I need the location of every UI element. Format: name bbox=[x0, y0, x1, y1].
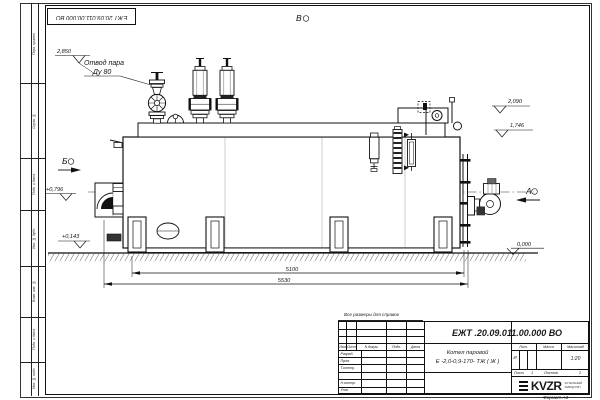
svg-text:2,850: 2,850 bbox=[56, 49, 72, 55]
tb-h4r bbox=[511, 350, 590, 351]
steam-outlet-label-line1: Отвод пара bbox=[84, 59, 124, 67]
format-label: Формат А3 bbox=[543, 395, 568, 400]
tb-v3 bbox=[361, 350, 362, 395]
stamp-label-podp-data-1: Подп. и дата bbox=[32, 162, 36, 206]
lit-value: И bbox=[511, 355, 519, 360]
col-ndokum: N докум. bbox=[356, 345, 387, 349]
view-marker-right: А bbox=[516, 186, 540, 203]
masshtab-header: Масштаб bbox=[561, 345, 590, 349]
view-right-letter: А bbox=[525, 186, 532, 196]
stamp-label-podp-data-2: Подп. и дата bbox=[32, 321, 36, 358]
view-marker-left: Б bbox=[58, 156, 81, 173]
stamp-div-3 bbox=[20, 210, 45, 211]
logo-area: KVZR КОТЕЛЬНЫЙ ЗАВОД РЭП bbox=[511, 376, 590, 395]
logo-sub2: ЗАВОД РЭП bbox=[565, 386, 583, 389]
logo-bar bbox=[519, 381, 528, 383]
stamp-div-6 bbox=[20, 362, 45, 363]
ground bbox=[48, 253, 538, 262]
tb-h9 bbox=[339, 387, 424, 388]
tb-h7 bbox=[339, 372, 511, 373]
stamp-label-perv-primen: Перв. примен. bbox=[32, 8, 36, 80]
logo-text: KVZR bbox=[531, 379, 562, 393]
col-podp: Подп. bbox=[386, 345, 407, 349]
tb-h5 bbox=[339, 357, 424, 358]
elevation-0796: +0,796 bbox=[45, 187, 76, 201]
logo-subtext: КОТЕЛЬНЫЙ ЗАВОД РЭП bbox=[565, 382, 583, 389]
product-name-line2: Е -2,0-0,9-170- ТЖ ( Ж ) bbox=[436, 358, 500, 367]
row-nkontr: Н.контр. bbox=[341, 381, 356, 385]
logo-bar bbox=[519, 389, 528, 391]
stamp-label-inv-dubl: Инв. № дубл. bbox=[32, 214, 36, 262]
col-data: Дата bbox=[406, 345, 425, 349]
scale-value: 1:20 bbox=[561, 356, 590, 362]
stamp-div-5 bbox=[20, 317, 45, 318]
svg-text:2,090: 2,090 bbox=[507, 99, 523, 105]
steam-outlet-label-line2: Ду 80 bbox=[92, 69, 111, 76]
safety-valve-1 bbox=[189, 59, 212, 124]
stamp-div-2 bbox=[20, 158, 45, 159]
tb-v5 bbox=[406, 322, 407, 395]
dome-fitting bbox=[168, 114, 184, 123]
tb-h1 bbox=[339, 329, 424, 330]
safety-valve-2 bbox=[216, 59, 239, 124]
reference-note: Все размеры для справок bbox=[344, 312, 399, 317]
manhole bbox=[157, 223, 179, 239]
elevation-2090: 2,090 bbox=[492, 99, 530, 113]
sheets-value: 2 bbox=[579, 371, 581, 375]
row-razrab: Разраб. bbox=[341, 352, 354, 356]
svg-text:5530: 5530 bbox=[278, 278, 291, 284]
sheet-label: Лист bbox=[514, 371, 524, 375]
steam-outlet-valve bbox=[148, 73, 165, 124]
boiler-bottom-rail bbox=[137, 248, 450, 253]
view-marker-top: В bbox=[296, 13, 309, 23]
product-name-line1: Котел паровой bbox=[447, 349, 489, 358]
burner bbox=[468, 179, 501, 216]
svg-text:0,000: 0,000 bbox=[517, 242, 532, 248]
level-gauge-2 bbox=[393, 127, 402, 174]
svg-text:1,746: 1,746 bbox=[510, 123, 525, 129]
view-left-letter: Б bbox=[62, 156, 68, 166]
boiler-drawing: Отвод пара Ду 80 В Б А 2,850 bbox=[45, 5, 589, 313]
svg-text:+0,143: +0,143 bbox=[62, 234, 80, 240]
stamp-div-1 bbox=[20, 83, 45, 84]
stamp-div-4 bbox=[20, 266, 45, 267]
elevation-1746: 1,746 bbox=[494, 123, 533, 137]
elevation-0143: +0,143 bbox=[58, 234, 90, 248]
titleblock-doc-number: ЕЖТ .20.09.011.00.000 ВО bbox=[424, 322, 590, 343]
lit-header: Лит. bbox=[511, 345, 536, 349]
massa-header: Масса bbox=[536, 345, 561, 349]
stamp-col-line-2 bbox=[38, 3, 39, 396]
stamp-label-inv-podl: Инв. № подл. bbox=[32, 366, 36, 390]
sheet-value: 1 bbox=[531, 371, 533, 375]
svg-text:+0,796: +0,796 bbox=[46, 187, 64, 193]
tb-v9 bbox=[527, 350, 528, 369]
steam-outlet-label: Отвод пара Ду 80 bbox=[84, 59, 151, 85]
svg-text:5100: 5100 bbox=[286, 267, 299, 273]
tb-h2 bbox=[339, 336, 424, 337]
product-name: Котел паровой Е -2,0-0,9-170- ТЖ ( Ж ) bbox=[424, 343, 511, 372]
tb-v8 bbox=[519, 350, 520, 369]
row-utv: Утв. bbox=[341, 388, 349, 392]
drawing-sheet: Перв. примен. Справ. № Подп. и дата Инв.… bbox=[0, 0, 600, 400]
sheets-label: Листов bbox=[544, 371, 558, 375]
row-tkontr: Т.контр. bbox=[341, 366, 356, 370]
logo-emblem bbox=[519, 381, 528, 391]
row-prov: Пров. bbox=[341, 359, 350, 363]
title-block: Изм. Лист N докум. Подп. Дата Разраб. Пр… bbox=[338, 321, 589, 394]
logo-bar bbox=[519, 385, 528, 387]
view-top-letter: В bbox=[296, 13, 302, 23]
stamp-label-vzam-inv: Взам. инв. № bbox=[32, 270, 36, 313]
tb-v4 bbox=[386, 322, 387, 395]
stamp-label-sprav-no: Справ. № bbox=[32, 88, 36, 154]
